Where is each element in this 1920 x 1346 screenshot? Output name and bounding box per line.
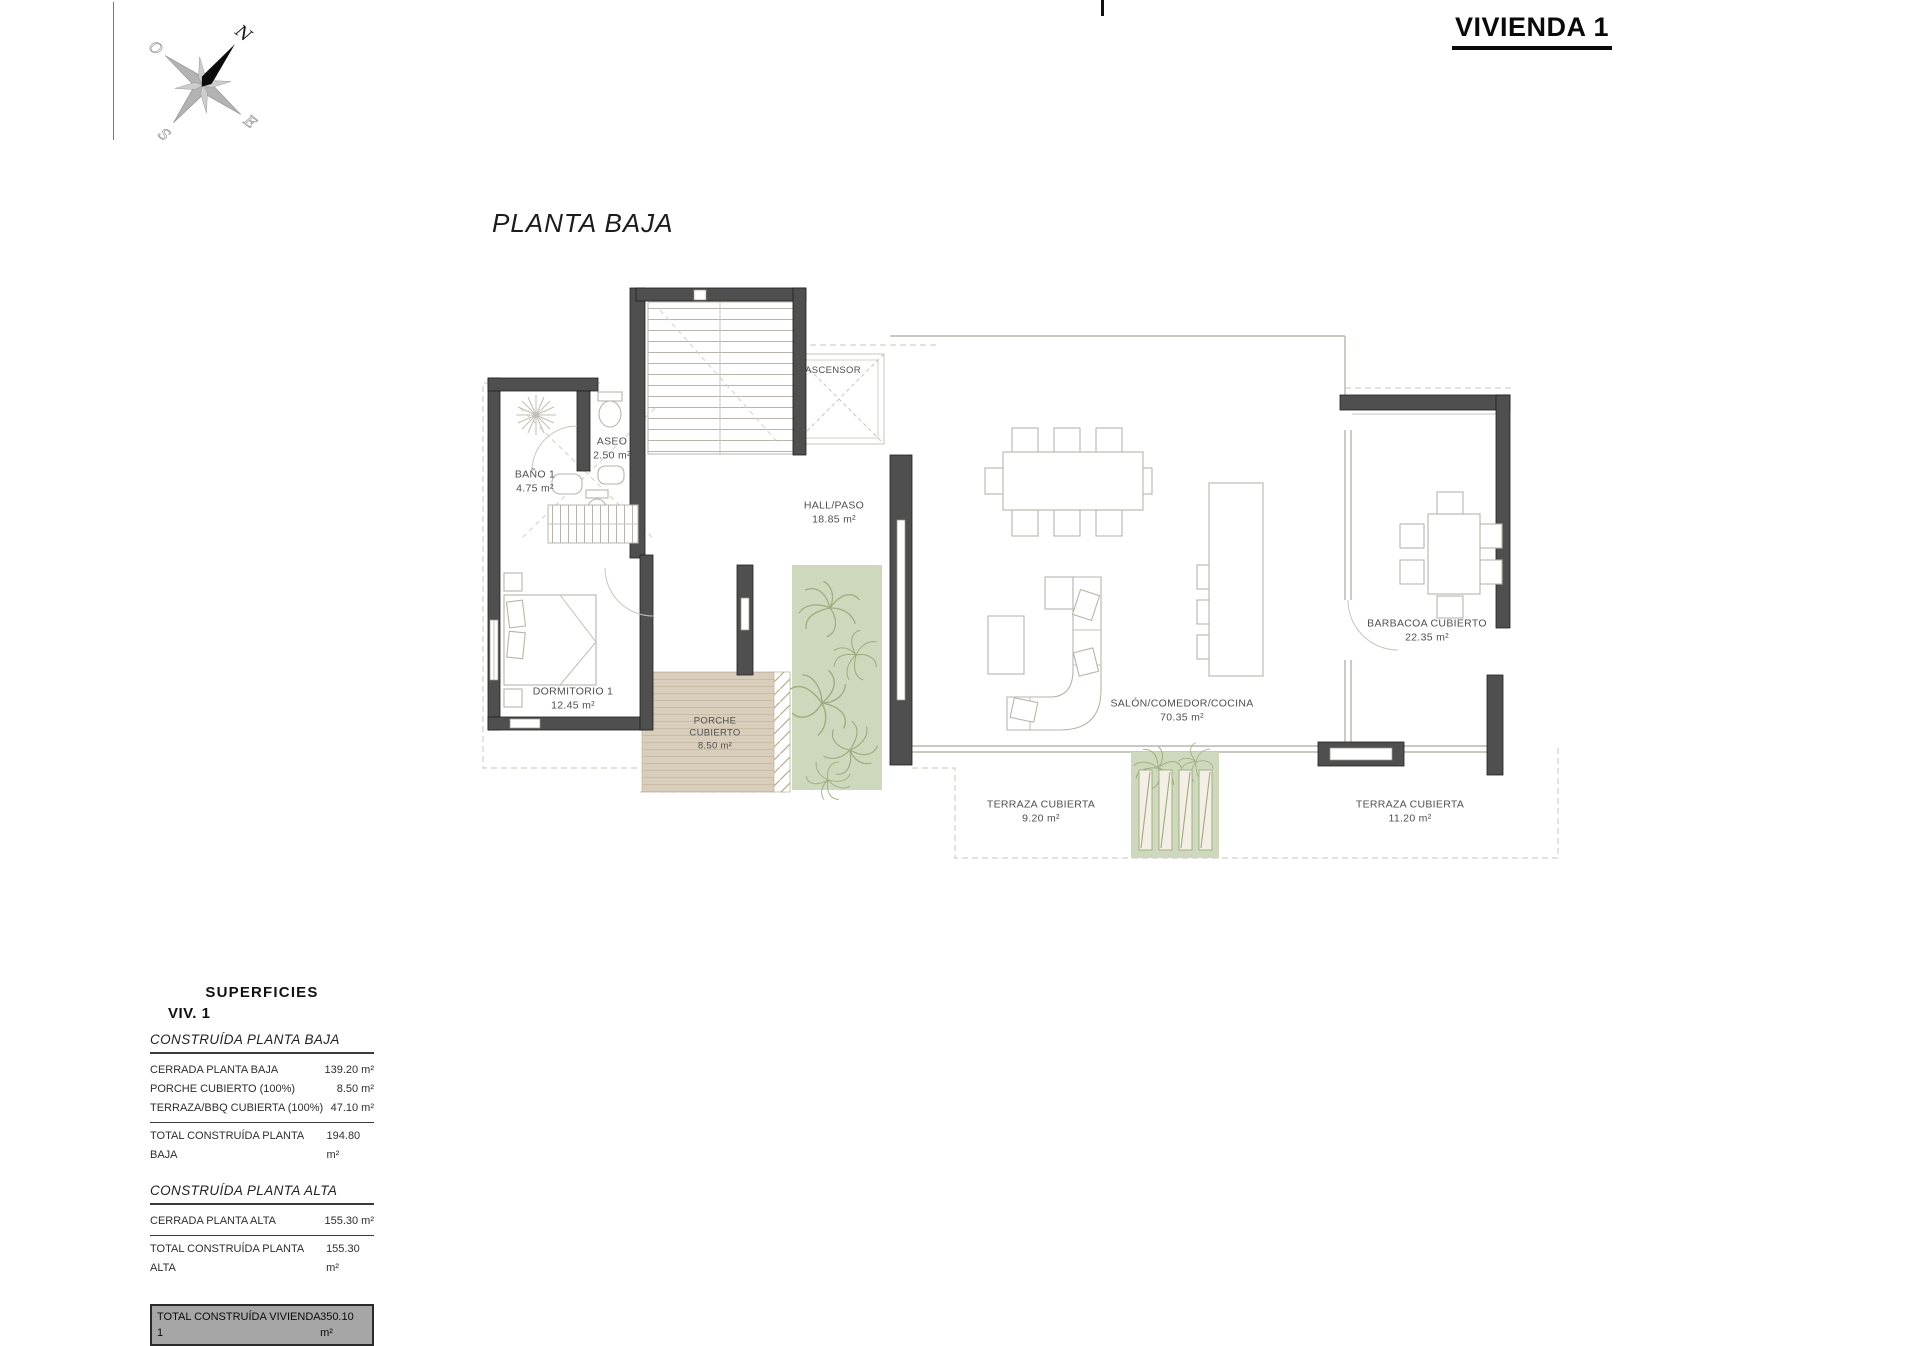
summary-row: CERRADA PLANTA BAJA 139.20 m² (150, 1061, 374, 1080)
sofa-group (988, 577, 1101, 730)
aseo-sink (598, 466, 624, 484)
room-label-terraza1: TERRAZA CUBIERTA9.20 m² (987, 798, 1095, 825)
aseo-toilet-tank (598, 392, 622, 401)
surface-summary-table: SUPERFICIES VIV. 1 CONSTRUÍDA PLANTA BAJ… (150, 984, 374, 1346)
cushion (1010, 698, 1038, 723)
grand-total-row: TOTAL CONSTRUÍDA VIVIENDA 1 350.10 m² (150, 1304, 374, 1346)
garden-strip (786, 565, 889, 807)
walls (488, 288, 1510, 775)
summary-row: PORCHE CUBIERTO (100%) 8.50 m² (150, 1080, 374, 1099)
room-label-dormitorio1: DORMITORIO 112.45 m² (533, 685, 613, 712)
dining-set (985, 428, 1152, 536)
room-label-salon: SALÓN/COMEDOR/COCINA70.35 m² (1110, 697, 1253, 724)
aseo-toilet-bowl (599, 401, 621, 427)
room-label-porche: PORCHE CUBIERTO8.50 m² (681, 715, 749, 752)
bbq-table (1428, 514, 1480, 594)
summary-subtitle: VIV. 1 (168, 1005, 374, 1022)
dining-table (1003, 452, 1143, 510)
summary-total-row: TOTAL CONSTRUÍDA PLANTA BAJA 194.80 m² (150, 1122, 374, 1165)
toilet-tank (586, 490, 608, 498)
room-label-hall: HALL/PASO18.85 m² (804, 499, 864, 526)
section-heading-planta-baja: CONSTRUÍDA PLANTA BAJA (150, 1032, 374, 1054)
sink (552, 474, 582, 494)
room-label-barbacoa: BARBACOA CUBIERTO22.35 m² (1367, 617, 1487, 644)
pillow (507, 631, 526, 659)
nightstand (504, 689, 522, 707)
bbq-dining-set (1400, 492, 1502, 618)
room-label-aseo: ASEO2.50 m² (593, 435, 631, 462)
room-label-ascensor: ASCENSOR (805, 365, 861, 377)
staircase (648, 302, 793, 454)
pillow (506, 600, 525, 628)
kitchen-island (1197, 483, 1263, 676)
room-label-bano1: BAÑO 14.75 m² (515, 468, 555, 495)
door-swings (532, 426, 1398, 650)
garden-sleepers (1128, 739, 1221, 858)
summary-title: SUPERFICIES (150, 984, 374, 1001)
section-heading-planta-alta: CONSTRUÍDA PLANTA ALTA (150, 1183, 374, 1205)
island-counter (1209, 483, 1263, 676)
summary-total-row: TOTAL CONSTRUÍDA PLANTA ALTA 155.30 m² (150, 1235, 374, 1278)
room-label-terraza2: TERRAZA CUBIERTA11.20 m² (1356, 798, 1464, 825)
nightstand (504, 573, 522, 591)
summary-row: TERRAZA/BBQ CUBIERTA (100%) 47.10 m² (150, 1099, 374, 1118)
summary-row: CERRADA PLANTA ALTA 155.30 m² (150, 1212, 374, 1231)
shower-symbol (516, 395, 556, 435)
chaise (1045, 577, 1073, 609)
coffee-table (988, 616, 1024, 674)
